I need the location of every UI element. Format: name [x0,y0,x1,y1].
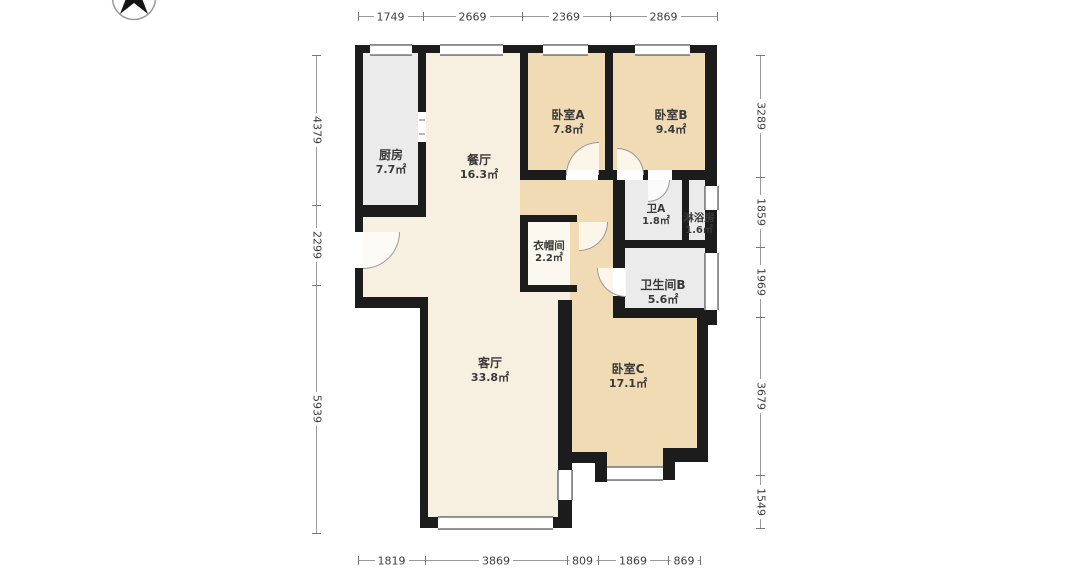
room-area: 7.7㎡ [376,163,407,177]
north-compass-icon [106,0,162,24]
room-area: 16.3㎡ [460,168,498,182]
door-opening [355,232,363,268]
floor-plan-canvas: 厨房 7.7㎡ 餐厅 16.3㎡ 卧室A 7.8㎡ 卧室B 9.4㎡ 卫A 1.… [0,0,1074,576]
room-name: 客厅 [471,356,509,371]
dimension-label: 3679 [754,379,767,413]
room-label-shower: 淋浴房 1.6㎡ [683,212,715,238]
floor-dining [426,53,520,217]
sliding-door-track [419,133,425,135]
door-opening [648,170,672,180]
window [440,44,503,56]
room-area: 1.8㎡ [642,216,670,229]
dimension-tick [312,205,321,206]
dimension-label: 1869 [616,554,650,567]
room-name: 卧室A [551,108,584,123]
dimension-label: 5939 [310,392,323,426]
room-label-toilet-a: 卫A 1.8㎡ [642,203,670,229]
dimension-tick [668,556,669,565]
dimension-label: 1969 [754,265,767,299]
dimension-tick [756,177,765,178]
dimension-tick [756,247,765,248]
room-name: 淋浴房 [683,212,715,225]
room-area: 7.8㎡ [551,123,584,137]
dimension-label: 2299 [310,228,323,262]
dimension-tick [598,556,599,565]
door-opening [418,112,426,142]
room-area: 17.1㎡ [609,377,647,391]
dimension-tick [756,475,765,476]
room-name: 餐厅 [460,153,498,168]
window [370,44,412,56]
dimension-tick [312,55,321,56]
dimension-label: 1749 [374,10,408,23]
wall [613,240,705,248]
room-label-living: 客厅 33.8㎡ [471,356,509,385]
dimension-label: 809 [569,554,596,567]
wall [420,297,428,528]
dimension-tick [700,556,701,565]
room-label-cloakroom: 衣帽间 2.2㎡ [533,240,565,266]
room-area: 2.2㎡ [533,253,565,266]
wall [520,215,528,292]
window [607,466,663,481]
wall [613,308,705,318]
room-area: 33.8㎡ [471,371,509,385]
dimension-tick [756,528,765,529]
dimension-label: 1819 [375,554,409,567]
dimension-label: 4379 [310,113,323,147]
room-area: 9.4㎡ [654,123,687,137]
dimension-label: 3869 [479,554,513,567]
dimension-label: 3289 [754,99,767,133]
dimension-tick [717,12,718,21]
sliding-door-track [419,119,425,121]
wall [595,452,607,482]
dimension-tick [358,12,359,21]
dimension-label: 2669 [456,10,490,23]
window [635,44,690,56]
dimension-tick [522,12,523,21]
dimension-label: 1549 [754,485,767,519]
dimension-tick [423,12,424,21]
window [543,44,588,56]
window [438,516,553,530]
dimension-tick [312,285,321,286]
dimension-label: 2369 [549,10,583,23]
wall [520,285,577,292]
room-name: 卫A [642,203,670,216]
dimension-tick [312,533,321,534]
wall [355,205,426,217]
floor-living [428,300,572,517]
window [704,253,719,310]
room-area: 5.6㎡ [640,293,685,307]
room-label-bathroom-b: 卫生间B 5.6㎡ [640,278,685,307]
dimension-tick [358,556,359,565]
wall [355,297,428,308]
room-name: 衣帽间 [533,240,565,253]
wall [520,53,528,180]
room-area: 1.6㎡ [683,225,715,238]
room-name: 卧室C [609,362,647,377]
wall [697,318,708,462]
room-label-kitchen: 厨房 7.7㎡ [376,148,407,177]
dimension-label: 869 [671,554,698,567]
window [704,186,719,210]
window [557,470,573,500]
dimension-tick [756,55,765,56]
room-label-dining: 餐厅 16.3㎡ [460,153,498,182]
floor-kitchen [363,53,418,205]
dimension-tick [567,556,568,565]
wall [663,462,675,480]
wall [605,53,613,180]
room-name: 卧室B [654,108,687,123]
dimension-tick [756,317,765,318]
room-name: 卫生间B [640,278,685,293]
room-label-bedroom-c: 卧室C 17.1㎡ [609,362,647,391]
wall [613,180,625,318]
dimension-label: 2869 [647,10,681,23]
room-label-bedroom-b: 卧室B 9.4㎡ [654,108,687,137]
wall [520,215,577,222]
dimension-label: 1859 [754,195,767,229]
room-name: 厨房 [376,148,407,163]
dimension-tick [610,12,611,21]
floor-corridor [520,180,613,215]
room-label-bedroom-a: 卧室A 7.8㎡ [551,108,584,137]
dimension-tick [425,556,426,565]
